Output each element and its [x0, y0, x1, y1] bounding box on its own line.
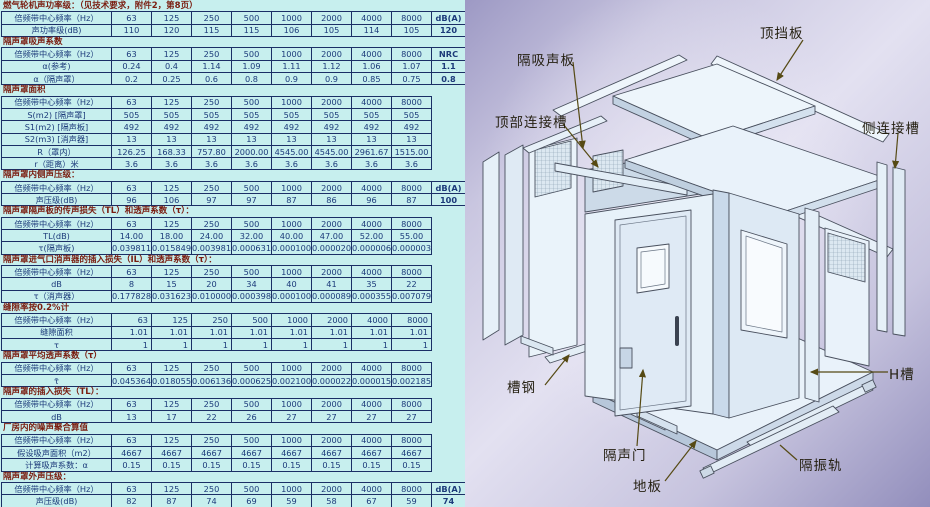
table-cell: 97 [192, 194, 232, 206]
table-cell: 1.01 [232, 327, 272, 339]
table-cell: 27 [312, 411, 352, 423]
table-cell: 1000 [272, 435, 312, 447]
table-cell: 67 [352, 495, 392, 507]
row-label: TL(dB) [2, 230, 112, 242]
table-cell: 1.06 [352, 61, 392, 73]
table-cell: 0.8 [432, 73, 465, 85]
table-cell: 505 [152, 109, 192, 121]
table-cell: 8000 [392, 435, 432, 447]
table-cell: 0.007079 [392, 291, 432, 303]
row-label: 倍频带中心频率（Hz） [2, 218, 112, 230]
table-cell: 22 [192, 411, 232, 423]
table-cell: 0.15 [232, 459, 272, 471]
table-cell: 492 [312, 121, 352, 133]
table-cell: 8000 [392, 266, 432, 278]
table-cell: 0.015849 [152, 242, 192, 254]
table-cell: 14.00 [112, 230, 152, 242]
table-row: 声功率级(dB)110120115115106105114105120 [2, 25, 465, 37]
table-cell: 1.01 [272, 327, 312, 339]
table-row: r（距离）米3.63.63.63.63.63.63.63.6 [2, 158, 432, 170]
table-cell: dB(A) [432, 182, 465, 194]
row-label: 倍频带中心频率（Hz） [2, 182, 112, 194]
table-cell: 115 [192, 25, 232, 37]
table-cell: 250 [192, 363, 232, 375]
table-cell: 0.000100 [272, 291, 312, 303]
table-row: R（罩内）126.25168.33757.802000.004545.00454… [2, 146, 432, 158]
table-row: 倍频带中心频率（Hz）631252505001000200040008000 [2, 218, 432, 230]
table-cell: 24.00 [192, 230, 232, 242]
table-row: 倍频带中心频率（Hz）631252505001000200040008000NR… [2, 48, 465, 60]
label-vibration-rail: 隔振轨 [799, 454, 843, 474]
table-cell: 105 [392, 25, 432, 37]
side-connection-channel [877, 162, 887, 332]
table-cell: 2000 [312, 218, 352, 230]
label-insulation-panel: 隔吸声板 [517, 49, 575, 69]
table-cell: 125 [152, 483, 192, 495]
table-cell: 757.80 [192, 146, 232, 158]
table-cell: 2000 [312, 399, 352, 411]
table-cell: 1.01 [112, 327, 152, 339]
table-cell: 505 [392, 109, 432, 121]
table-cell: 106 [152, 194, 192, 206]
table-cell: 250 [192, 483, 232, 495]
table-cell: 4000 [352, 399, 392, 411]
table-cell: 59 [272, 495, 312, 507]
row-label: 声功率级(dB) [2, 25, 112, 37]
table-cell: 63 [112, 12, 152, 24]
table-cell: 505 [272, 109, 312, 121]
table-cell: 2000 [312, 363, 352, 375]
table-row: 倍频带中心频率（Hz）631252505001000200040008000dB… [2, 12, 465, 24]
row-label: τ [2, 339, 112, 351]
table-cell: 0.8 [232, 73, 272, 85]
row-label: R（罩内） [2, 146, 112, 158]
table-cell: 505 [192, 109, 232, 121]
table-cell: 52.00 [352, 230, 392, 242]
table-cell: 0.010000 [192, 291, 232, 303]
table-cell: 13 [192, 134, 232, 146]
label-top-connection-channel: 顶部连接槽 [495, 111, 568, 131]
row-label: 计算吸声系数：α [2, 459, 112, 471]
table-cell: 500 [232, 399, 272, 411]
table-cell: 1000 [272, 483, 312, 495]
table-cell: 0.000015 [352, 375, 392, 387]
table-cell: 250 [192, 218, 232, 230]
table-cell: 63 [112, 435, 152, 447]
table-cell: 4000 [352, 266, 392, 278]
table-cell: 13 [112, 134, 152, 146]
table-cell: 87 [272, 194, 312, 206]
table-cell: 0.031623 [152, 291, 192, 303]
table-cell: 13 [352, 134, 392, 146]
section-title: 隔声罩内侧声压级： [1, 170, 465, 180]
table-cell: 0.9 [312, 73, 352, 85]
table-cell: 1 [152, 339, 192, 351]
table-cell: 8000 [392, 182, 432, 194]
table-cell: 125 [152, 435, 192, 447]
table-cell: 13 [272, 134, 312, 146]
table-cell: 3.6 [152, 158, 192, 170]
table-cell: 4667 [152, 447, 192, 459]
table-cell: 97 [232, 194, 272, 206]
row-label: S2(m3) [消声器] [2, 134, 112, 146]
table-cell: 1000 [272, 97, 312, 109]
table-cell: 1.09 [232, 61, 272, 73]
table-cell: 120 [432, 25, 465, 37]
table-cell: 1.01 [152, 327, 192, 339]
table-row: α（隔声罩）0.20.250.60.80.90.90.850.750.8 [2, 73, 465, 85]
table-cell: 3.6 [272, 158, 312, 170]
table-cell: 1.07 [392, 61, 432, 73]
table-row: dB1317222627272727 [2, 411, 432, 423]
table-cell: 500 [232, 266, 272, 278]
table-cell: 47.00 [312, 230, 352, 242]
table-cell: 0.9 [272, 73, 312, 85]
table-cell: 1000 [272, 363, 312, 375]
table-cell: 4000 [352, 12, 392, 24]
row-label: 倍频带中心频率（Hz） [2, 97, 112, 109]
table-cell: 505 [312, 109, 352, 121]
label-h-channel: H槽 [889, 363, 915, 383]
table-cell: 492 [192, 121, 232, 133]
table-cell: 4667 [112, 447, 152, 459]
table-cell: 87 [152, 495, 192, 507]
row-label: 倍频带中心频率（Hz） [2, 483, 112, 495]
table-cell: 125 [152, 218, 192, 230]
table-cell: 125 [152, 314, 192, 326]
table-cell: 0.24 [112, 61, 152, 73]
table-row: dB815203440413522 [2, 278, 432, 290]
table-cell: 2000 [312, 266, 352, 278]
table-cell: 41 [312, 278, 352, 290]
table-cell: 0.15 [272, 459, 312, 471]
table-cell: 13 [312, 134, 352, 146]
table-cell: 105 [312, 25, 352, 37]
table-cell: 96 [352, 194, 392, 206]
table-cell: 126.25 [112, 146, 152, 158]
table-row: 倍频带中心频率（Hz）631252505001000200040008000 [2, 399, 432, 411]
table-cell: 500 [232, 314, 272, 326]
table-cell: 74 [192, 495, 232, 507]
table-cell: 1.14 [192, 61, 232, 73]
table-row: τ̄0.0453640.0180550.0061360.0006250.0021… [2, 375, 432, 387]
table-cell: 1515.00 [392, 146, 432, 158]
table-cell: 100 [432, 194, 465, 206]
table-cell: 0.000355 [352, 291, 392, 303]
section-title: 隔声罩进气口消声器的插入损失（IL）和透声系数（τ）： [1, 255, 465, 265]
table-cell: 0.002100 [272, 375, 312, 387]
section-table: 倍频带中心频率（Hz）631252505001000200040008000dB… [1, 398, 432, 424]
row-label: 声压级(dB) [2, 495, 112, 507]
table-cell: 250 [192, 97, 232, 109]
table-cell: 58 [312, 495, 352, 507]
table-cell: 1.01 [192, 327, 232, 339]
table-row: TL(dB)14.0018.0024.0032.0040.0047.0052.0… [2, 230, 432, 242]
h-channel-part [805, 208, 819, 402]
label-channel-steel: 槽钢 [507, 376, 536, 396]
table-cell: 4667 [192, 447, 232, 459]
front-right-wall [729, 193, 799, 418]
table-cell: dB(A) [432, 12, 465, 24]
table-row: 倍频带中心频率（Hz）631252505001000200040008000 [2, 363, 432, 375]
row-label: S(m2) [隔声罩] [2, 109, 112, 121]
row-label: 倍频带中心频率（Hz） [2, 399, 112, 411]
table-cell: 125 [152, 12, 192, 24]
table-row: 倍频带中心频率（Hz）631252505001000200040008000 [2, 266, 432, 278]
table-cell: 1.1 [432, 61, 465, 73]
table-cell: 0.75 [392, 73, 432, 85]
section-table: 倍频带中心频率（Hz）631252505001000200040008000dB… [1, 265, 432, 303]
section-title: 厂房内的噪声聚合算值 [1, 423, 465, 433]
table-cell: 17 [152, 411, 192, 423]
table-cell: 1 [192, 339, 232, 351]
table-cell: 4545.00 [272, 146, 312, 158]
row-label: τ(隔声板) [2, 242, 112, 254]
table-cell: 4000 [352, 483, 392, 495]
table-cell: 3.6 [112, 158, 152, 170]
table-row: τ（消声器）0.1778280.0316230.0100000.0003980.… [2, 291, 432, 303]
table-cell: 114 [352, 25, 392, 37]
table-row: 倍频带中心频率（Hz）631252505001000200040008000dB… [2, 483, 465, 495]
section-table: 倍频带中心频率（Hz）631252505001000200040008000TL… [1, 217, 432, 255]
table-cell: 63 [112, 97, 152, 109]
table-cell: 0.15 [392, 459, 432, 471]
table-cell: 110 [112, 25, 152, 37]
table-cell: 125 [152, 363, 192, 375]
row-label: S1(m2) [隔声板] [2, 121, 112, 133]
enclosure-exploded-drawing [465, 0, 930, 507]
table-row: 缝隙面积1.011.011.011.011.011.011.011.01 [2, 327, 432, 339]
table-cell: 0.000003 [392, 242, 432, 254]
table-cell: 500 [232, 182, 272, 194]
table-cell: 1 [112, 339, 152, 351]
table-cell: 125 [152, 48, 192, 60]
table-cell: 22 [392, 278, 432, 290]
table-cell: 2000 [312, 182, 352, 194]
table-cell: 18.00 [152, 230, 192, 242]
table-cell: 4000 [352, 97, 392, 109]
table-row: 假设吸声面积（m2）466746674667466746674667466746… [2, 447, 432, 459]
table-cell: 1.11 [272, 61, 312, 73]
table-cell: 0.039811 [112, 242, 152, 254]
row-label: α(参考) [2, 61, 112, 73]
table-row: 倍频带中心频率（Hz）631252505001000200040008000dB… [2, 182, 465, 194]
table-cell: 13 [112, 411, 152, 423]
table-cell: 40 [272, 278, 312, 290]
row-label: 假设吸声面积（m2） [2, 447, 112, 459]
door-latch [620, 348, 632, 368]
table-cell: 3.6 [192, 158, 232, 170]
table-cell: 0.000631 [232, 242, 272, 254]
table-cell: 63 [112, 314, 152, 326]
table-cell: 4667 [352, 447, 392, 459]
table-cell: 0.045364 [112, 375, 152, 387]
table-cell: 505 [112, 109, 152, 121]
table-row: S1(m2) [隔声板]492492492492492492492492 [2, 121, 432, 133]
table-cell: 492 [112, 121, 152, 133]
section-table: 倍频带中心频率（Hz）631252505001000200040008000NR… [1, 47, 465, 85]
table-cell: 0.000006 [352, 242, 392, 254]
table-cell: 13 [392, 134, 432, 146]
table-cell: 0.15 [152, 459, 192, 471]
table-cell: 4667 [272, 447, 312, 459]
corner-column [713, 190, 729, 418]
label-floor: 地板 [633, 475, 662, 495]
table-cell: 27 [392, 411, 432, 423]
table-cell: 4667 [312, 447, 352, 459]
table-cell: 500 [232, 435, 272, 447]
table-cell: 1000 [272, 182, 312, 194]
table-cell: 500 [232, 363, 272, 375]
table-cell: 63 [112, 218, 152, 230]
row-label: 倍频带中心频率（Hz） [2, 48, 112, 60]
section-title: 隔声罩外声压级： [1, 472, 465, 482]
table-cell: 500 [232, 48, 272, 60]
table-cell: 505 [232, 109, 272, 121]
table-cell: 2000 [312, 314, 352, 326]
table-cell: 1000 [272, 12, 312, 24]
table-cell: 250 [192, 12, 232, 24]
table-row: S(m2) [隔声罩]505505505505505505505505 [2, 109, 432, 121]
section-table: 倍频带中心频率（Hz）631252505001000200040008000假设… [1, 434, 432, 472]
table-cell: 125 [152, 182, 192, 194]
row-label: τ̄ [2, 375, 112, 387]
section-table: 倍频带中心频率（Hz）631252505001000200040008000S(… [1, 96, 432, 171]
table-cell: 500 [232, 218, 272, 230]
table-cell: 500 [232, 12, 272, 24]
row-label: 缝隙面积 [2, 327, 112, 339]
table-cell: 27 [352, 411, 392, 423]
table-cell: 0.2 [112, 73, 152, 85]
table-cell: 34 [232, 278, 272, 290]
table-cell: 0.000089 [312, 291, 352, 303]
enclosure-diagram-pane: 顶挡板 隔吸声板 顶部连接槽 侧连接槽 H槽 槽钢 隔声门 地板 隔振轨 [465, 0, 930, 507]
table-cell: 63 [112, 363, 152, 375]
table-cell: 250 [192, 314, 232, 326]
table-cell: 4000 [352, 182, 392, 194]
table-row: 倍频带中心频率（Hz）631252505001000200040008000 [2, 435, 432, 447]
table-cell: 250 [192, 266, 232, 278]
table-cell: 4545.00 [312, 146, 352, 158]
table-cell: 8000 [392, 12, 432, 24]
table-cell: 32.00 [232, 230, 272, 242]
table-cell: 8000 [392, 483, 432, 495]
table-cell: 500 [232, 97, 272, 109]
section-title: 隔声罩平均透声系数（τ） [1, 351, 465, 361]
table-cell: 20 [192, 278, 232, 290]
table-cell: 115 [232, 25, 272, 37]
table-cell: 1.01 [312, 327, 352, 339]
table-cell: 8000 [392, 399, 432, 411]
section-title: 缝隙率按0.2%计 [1, 303, 465, 313]
table-cell: 63 [112, 266, 152, 278]
table-cell: 74 [432, 495, 465, 507]
table-cell: 40.00 [272, 230, 312, 242]
table-cell: 0.000100 [272, 242, 312, 254]
row-label: dB [2, 278, 112, 290]
table-cell: 250 [192, 435, 232, 447]
table-cell: 8000 [392, 97, 432, 109]
table-cell: 505 [352, 109, 392, 121]
table-cell: 13 [232, 134, 272, 146]
table-cell: 27 [272, 411, 312, 423]
table-cell: 8000 [392, 48, 432, 60]
table-row: τ11111111 [2, 339, 432, 351]
table-cell: 1 [272, 339, 312, 351]
table-cell: 168.33 [152, 146, 192, 158]
table-cell: 87 [392, 194, 432, 206]
table-cell: dB(A) [432, 483, 465, 495]
table-cell: 96 [112, 194, 152, 206]
label-side-connection-channel: 侧连接槽 [862, 117, 920, 137]
table-cell: 492 [352, 121, 392, 133]
table-cell: 4000 [352, 48, 392, 60]
section-table: 倍频带中心频率（Hz）631252505001000200040008000dB… [1, 482, 465, 507]
table-cell: 1.01 [392, 327, 432, 339]
table-cell: 1 [352, 339, 392, 351]
table-cell: 63 [112, 483, 152, 495]
table-cell: 492 [232, 121, 272, 133]
table-cell: 0.15 [352, 459, 392, 471]
table-cell: 13 [152, 134, 192, 146]
table-cell: 2000 [312, 435, 352, 447]
table-cell: 125 [152, 97, 192, 109]
table-cell: 2961.67 [352, 146, 392, 158]
table-cell: 0.006136 [192, 375, 232, 387]
table-cell: 63 [112, 182, 152, 194]
section-table: 倍频带中心频率（Hz）631252505001000200040008000dB… [1, 11, 465, 37]
row-label: dB [2, 411, 112, 423]
table-cell: 0.177828 [112, 291, 152, 303]
table-cell: 1.12 [312, 61, 352, 73]
table-cell: 1 [232, 339, 272, 351]
table-cell: 0.000022 [312, 375, 352, 387]
table-cell: 0.6 [192, 73, 232, 85]
table-cell: 106 [272, 25, 312, 37]
table-cell: 492 [392, 121, 432, 133]
row-label: 倍频带中心频率（Hz） [2, 435, 112, 447]
table-row: 声压级(dB)96106979787869687100 [2, 194, 465, 206]
table-cell: 492 [272, 121, 312, 133]
table-cell: 8 [112, 278, 152, 290]
table-row: τ(隔声板)0.0398110.0158490.0039810.0006310.… [2, 242, 432, 254]
table-cell: 63 [112, 399, 152, 411]
table-cell: 0.25 [152, 73, 192, 85]
table-cell: 3.6 [232, 158, 272, 170]
table-cell: 120 [152, 25, 192, 37]
row-label: r（距离）米 [2, 158, 112, 170]
table-cell: 1.01 [352, 327, 392, 339]
section-table: 倍频带中心频率（Hz）631252505001000200040008000τ̄… [1, 362, 432, 388]
table-row: 声压级(dB)828774695958675974 [2, 495, 465, 507]
table-row: 倍频带中心频率（Hz）631252505001000200040008000 [2, 97, 432, 109]
table-cell: 82 [112, 495, 152, 507]
table-cell: 15 [152, 278, 192, 290]
table-cell: 2000.00 [232, 146, 272, 158]
table-cell: 35 [352, 278, 392, 290]
document-page: 燃气轮机声功率级：（见技术要求，附件2，第8页）倍频带中心频率（Hz）63125… [0, 0, 930, 507]
table-cell: 0.15 [312, 459, 352, 471]
table-cell: 4667 [232, 447, 272, 459]
table-cell: 0.15 [192, 459, 232, 471]
table-cell: 2000 [312, 12, 352, 24]
table-cell: 55.00 [392, 230, 432, 242]
table-cell: 1 [312, 339, 352, 351]
table-cell: 4000 [352, 218, 392, 230]
table-cell: 0.000020 [312, 242, 352, 254]
table-cell: 1000 [272, 48, 312, 60]
table-row: α(参考)0.240.41.141.091.111.121.061.071.1 [2, 61, 465, 73]
